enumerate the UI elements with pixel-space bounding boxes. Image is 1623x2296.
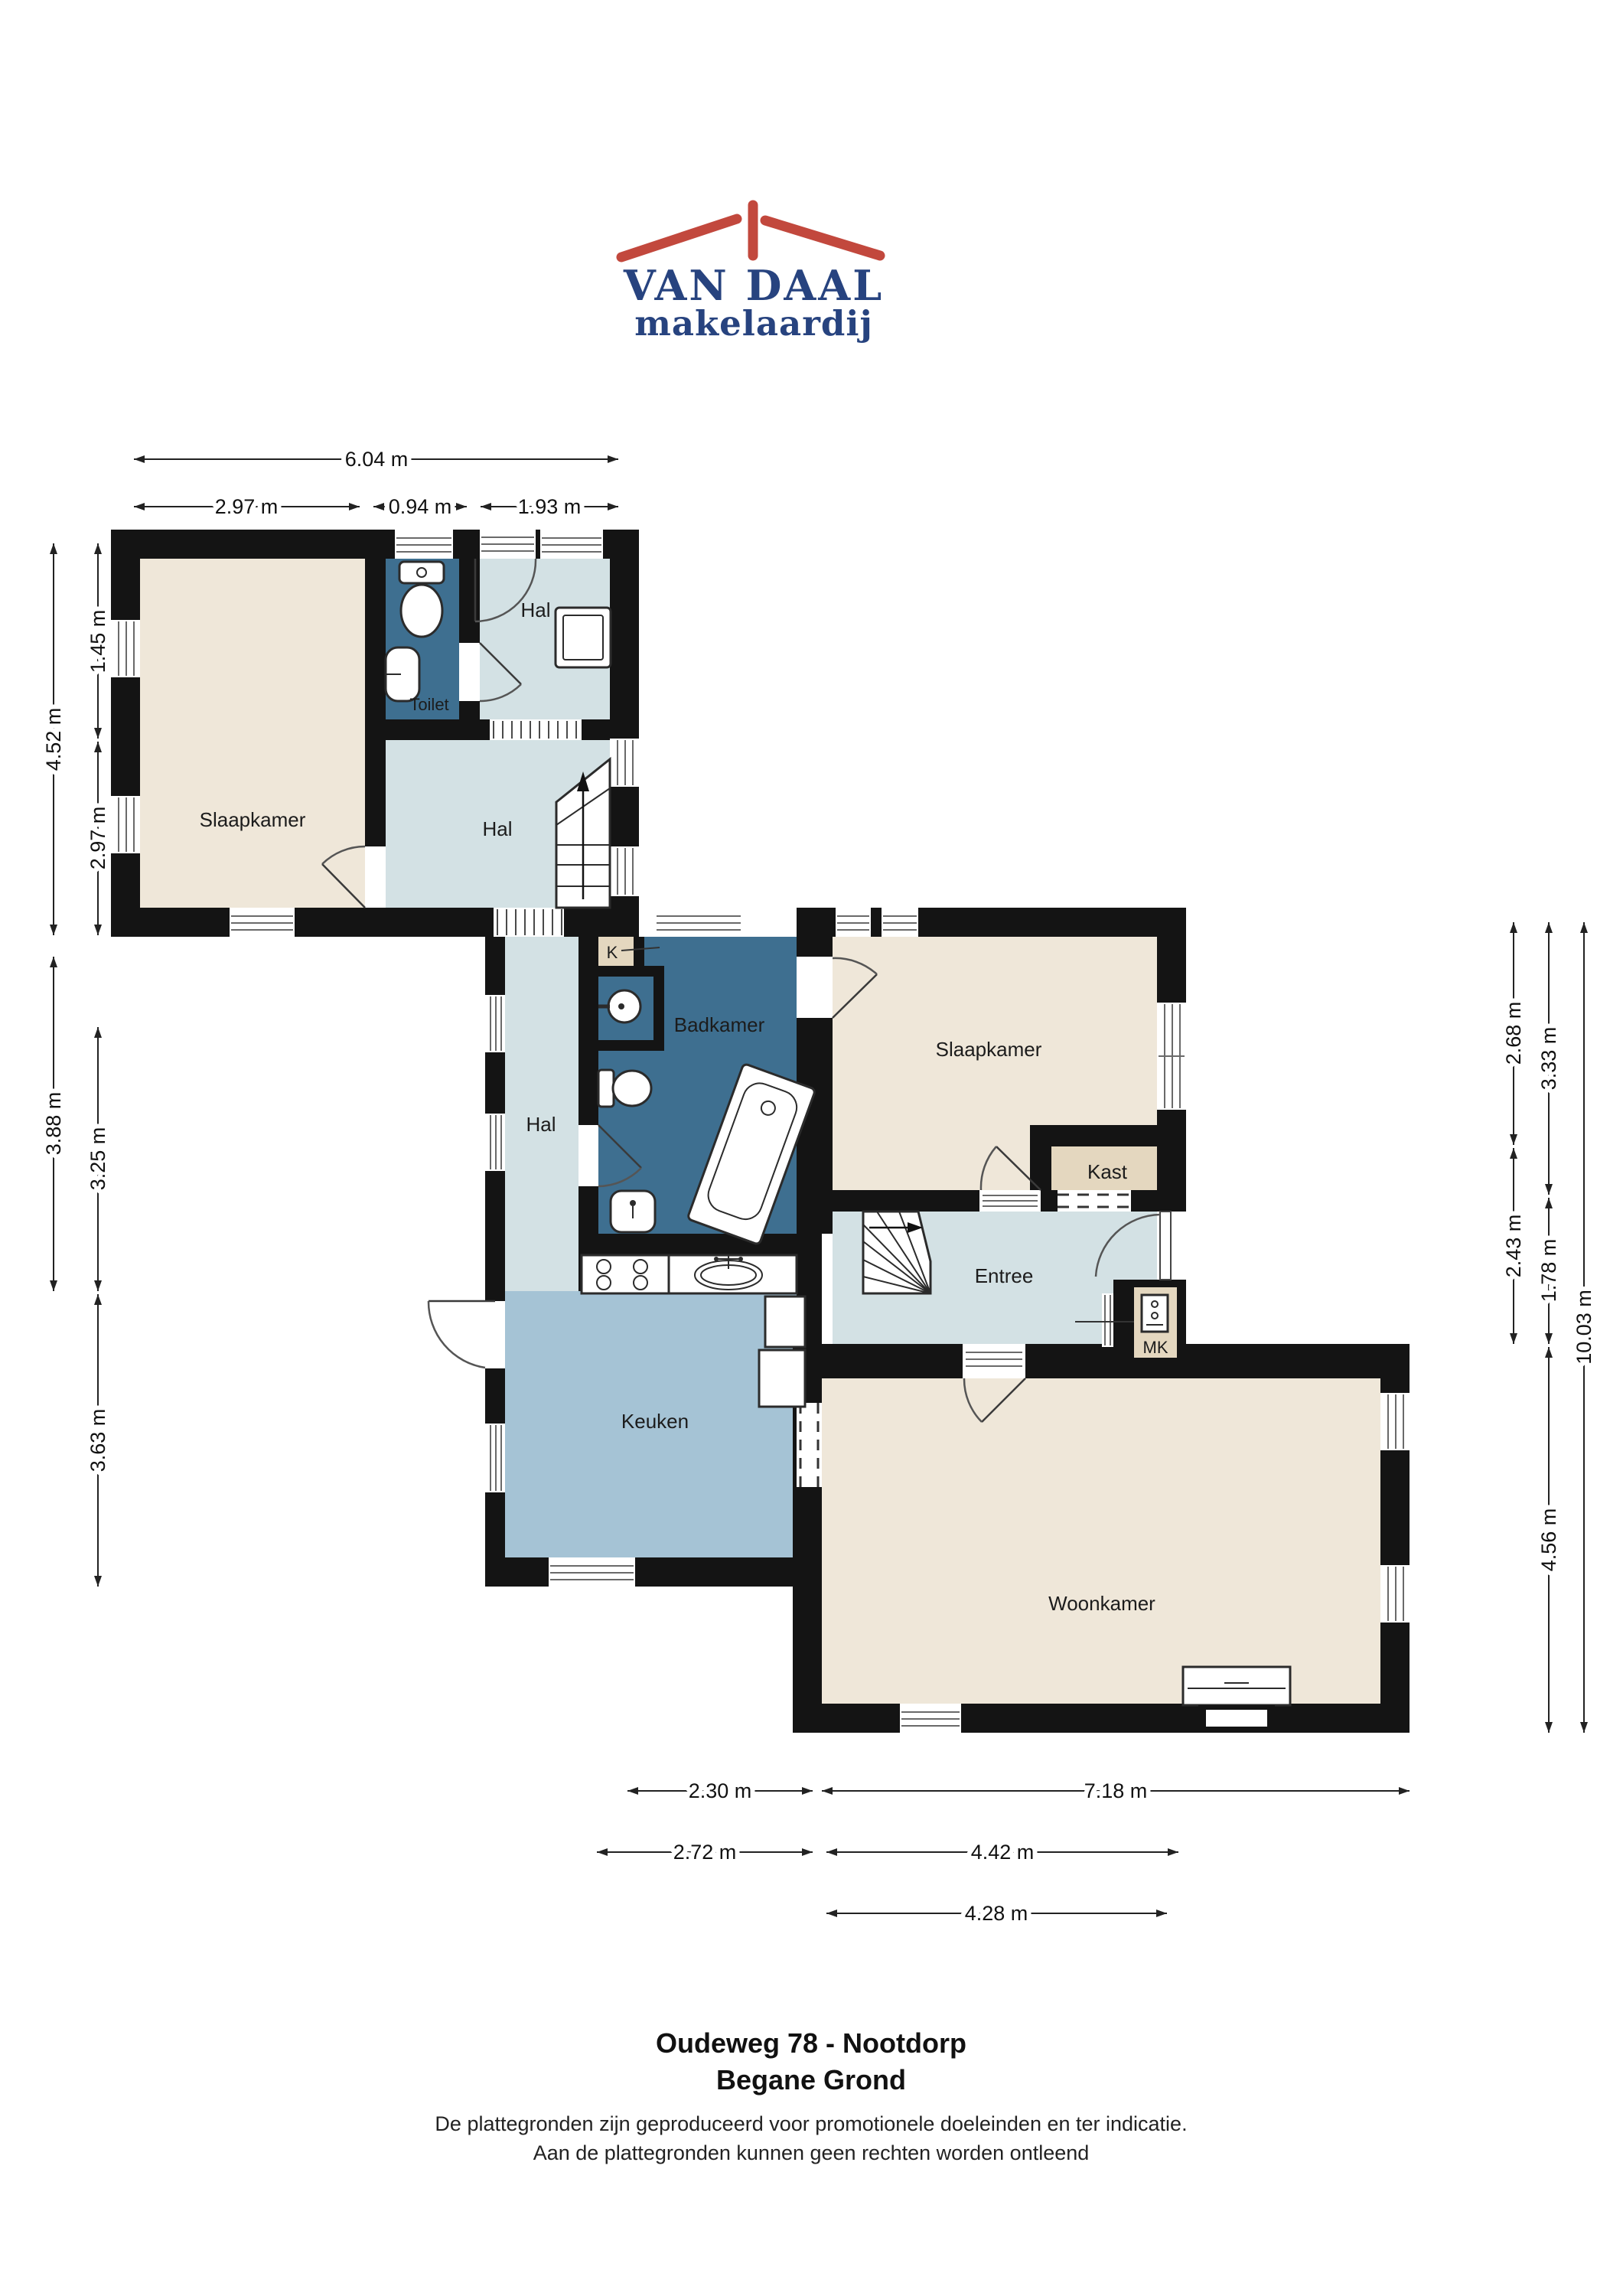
keuken-woonkamer-opening: [797, 1403, 822, 1487]
room-woonkamer: [822, 1378, 1380, 1704]
room-label-mk: MK: [1143, 1338, 1168, 1357]
dim-top-1: 2.97 m: [215, 495, 279, 518]
dim-bottom-272: 2.72 m: [673, 1841, 737, 1864]
room-label-kast: Kast: [1087, 1160, 1128, 1183]
dim-right-333: 3.33 m: [1537, 1027, 1560, 1091]
dim-bottom-230: 2.30 m: [689, 1779, 752, 1802]
window: [655, 908, 742, 937]
dim-right-178: 1.78 m: [1537, 1239, 1560, 1303]
floorplan-page: VAN DAAL makelaardij: [0, 0, 1623, 2296]
dim-right-243: 2.43 m: [1502, 1215, 1525, 1278]
window: [836, 908, 871, 937]
front-door-top: [480, 530, 536, 559]
window: [485, 1114, 505, 1171]
window: [1380, 1393, 1410, 1450]
room-label-slaapkamer-left: Slaapkamer: [200, 808, 306, 831]
room-label-hal-top: Hal: [520, 598, 550, 621]
window: [1102, 1293, 1113, 1347]
room-label-keuken: Keuken: [621, 1410, 689, 1433]
toilet-icon: [598, 1070, 651, 1107]
room-label-hal-corridor: Hal: [526, 1113, 556, 1136]
window: [485, 1424, 505, 1492]
page-title-address: Oudeweg 78 - Nootdorp: [656, 2027, 966, 2059]
page-title-floor: Begane Grond: [716, 2064, 906, 2095]
stairs-winder-icon: [863, 1212, 930, 1293]
kast-sliding-opening: [1058, 1190, 1131, 1212]
dim-bottom-428: 4.28 m: [965, 1902, 1028, 1925]
sink-icon: [386, 647, 419, 701]
window: [610, 846, 639, 896]
window: [540, 530, 603, 559]
window: [485, 995, 505, 1052]
logo: VAN DAAL makelaardij: [621, 205, 884, 344]
disclaimer-line1: De plattegronden zijn geproduceerd voor …: [435, 2112, 1187, 2135]
dim-top-total: 6.04 m: [345, 448, 409, 471]
room-label-woonkamer: Woonkamer: [1048, 1592, 1155, 1615]
room-label-hal-main: Hal: [482, 817, 512, 840]
dim-top-3: 1.93 m: [518, 495, 582, 518]
window: [610, 739, 639, 787]
room-label-k: K: [607, 943, 618, 962]
window: [111, 620, 140, 677]
logo-text-sub: makelaardij: [634, 303, 873, 344]
passage-hatch: [494, 908, 564, 937]
dim-left-325: 3.25 m: [86, 1127, 109, 1191]
dim-left-452: 4.52 m: [42, 708, 65, 771]
window: [549, 1557, 635, 1587]
window: [230, 908, 295, 937]
window: [395, 530, 453, 559]
room-label-entree: Entree: [975, 1264, 1034, 1287]
disclaimer-line2: Aan de plattegronden kunnen geen rechten…: [533, 2141, 1090, 2164]
passage-hatch: [490, 719, 582, 740]
dim-left-388: 3.88 m: [42, 1092, 65, 1156]
fireplace-icon: [1183, 1667, 1290, 1731]
dim-right-1003: 10.03 m: [1572, 1290, 1595, 1365]
window: [1380, 1565, 1410, 1623]
logo-roof-icon: [621, 205, 880, 257]
dim-top-2: 0.94 m: [389, 495, 452, 518]
window: [882, 908, 918, 937]
washing-machine-icon: [556, 608, 611, 667]
room-label-toilet: Toilet: [409, 695, 448, 714]
window: [1157, 1003, 1186, 1110]
footer: Oudeweg 78 - Nootdorp Begane Grond De pl…: [435, 2027, 1187, 2164]
room-slaapkamer-left: [140, 559, 365, 908]
door-arc: [429, 1301, 505, 1368]
dim-left-145: 1.45 m: [86, 610, 109, 673]
window: [111, 796, 140, 853]
stove-icon: [582, 1255, 669, 1293]
fridge-icon: [759, 1296, 805, 1407]
room-label-badkamer: Badkamer: [674, 1013, 765, 1036]
dim-bottom-718: 7.18 m: [1084, 1779, 1148, 1802]
dim-bottom-442: 4.42 m: [971, 1841, 1035, 1864]
room-label-slaapkamer-right: Slaapkamer: [936, 1038, 1042, 1061]
dim-right-268: 2.68 m: [1502, 1002, 1525, 1065]
dim-right-456: 4.56 m: [1537, 1508, 1560, 1572]
dim-left-297: 2.97 m: [86, 807, 109, 870]
kitchen-sink-icon: [669, 1255, 797, 1293]
toilet-icon: [399, 562, 444, 637]
window: [900, 1704, 961, 1733]
dim-left-363: 3.63 m: [86, 1409, 109, 1473]
sink-icon: [611, 1191, 655, 1232]
